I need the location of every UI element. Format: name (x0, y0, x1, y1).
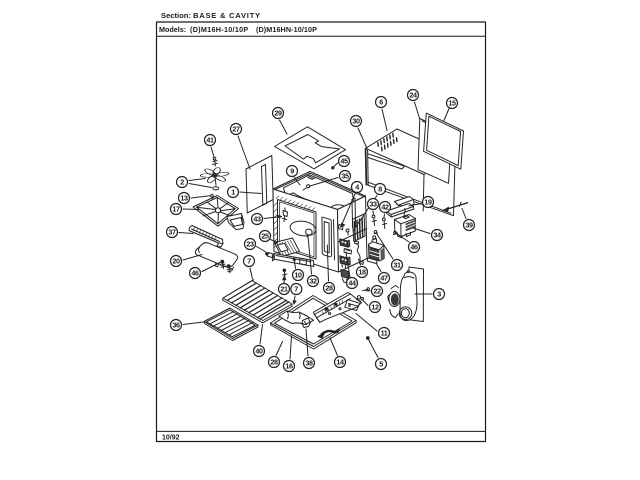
svg-text:1: 1 (231, 187, 235, 196)
svg-text:4: 4 (355, 182, 359, 191)
svg-text:(D)M16HN-10/10P: (D)M16HN-10/10P (256, 25, 317, 34)
svg-text:15: 15 (448, 98, 456, 107)
svg-text:36: 36 (172, 320, 180, 329)
svg-text:13: 13 (180, 193, 188, 202)
svg-text:37: 37 (168, 227, 176, 236)
svg-text:28: 28 (325, 283, 333, 292)
svg-text:46: 46 (191, 268, 199, 277)
svg-text:18: 18 (358, 267, 366, 276)
svg-text:21: 21 (280, 284, 288, 293)
svg-text:19: 19 (424, 197, 432, 206)
svg-text:27: 27 (232, 124, 240, 133)
svg-text:28: 28 (270, 357, 278, 366)
svg-text:31: 31 (393, 260, 401, 269)
svg-text:10/92: 10/92 (162, 435, 180, 442)
svg-text:14: 14 (336, 357, 344, 366)
svg-text:6: 6 (379, 97, 383, 106)
svg-text:BASE & CAVITY: BASE & CAVITY (193, 11, 261, 20)
svg-text:44: 44 (348, 278, 356, 287)
svg-text:47: 47 (380, 273, 388, 282)
svg-text:45: 45 (340, 156, 348, 165)
svg-text:Models:: Models: (159, 25, 186, 34)
svg-text:43: 43 (253, 214, 261, 223)
svg-text:24: 24 (409, 90, 417, 99)
svg-text:20: 20 (172, 256, 180, 265)
svg-text:12: 12 (371, 302, 379, 311)
svg-text:16: 16 (285, 361, 293, 370)
svg-text:9: 9 (290, 166, 294, 175)
svg-text:3: 3 (437, 289, 441, 298)
svg-text:5: 5 (379, 359, 383, 368)
svg-text:7: 7 (294, 284, 298, 293)
svg-text:17: 17 (172, 204, 180, 213)
svg-text:22: 22 (373, 286, 381, 295)
svg-text:35: 35 (341, 171, 349, 180)
svg-text:11: 11 (381, 328, 388, 337)
svg-text:(D)M16H-10/10P: (D)M16H-10/10P (190, 25, 249, 34)
svg-text:39: 39 (465, 220, 473, 229)
svg-text:10: 10 (294, 270, 302, 279)
svg-text:38: 38 (305, 358, 313, 367)
svg-text:33: 33 (369, 199, 377, 208)
svg-text:7: 7 (247, 256, 251, 265)
svg-text:32: 32 (309, 276, 317, 285)
svg-text:Section:: Section: (161, 11, 191, 20)
svg-text:2: 2 (180, 177, 184, 186)
svg-text:8: 8 (378, 184, 382, 193)
svg-text:23: 23 (246, 239, 254, 248)
svg-text:42: 42 (381, 202, 389, 211)
svg-text:40: 40 (255, 346, 263, 355)
svg-text:25: 25 (261, 231, 269, 240)
svg-text:30: 30 (352, 116, 360, 125)
svg-text:46: 46 (410, 242, 418, 251)
svg-text:29: 29 (274, 108, 282, 117)
svg-text:41: 41 (206, 135, 214, 144)
svg-text:34: 34 (433, 230, 441, 239)
